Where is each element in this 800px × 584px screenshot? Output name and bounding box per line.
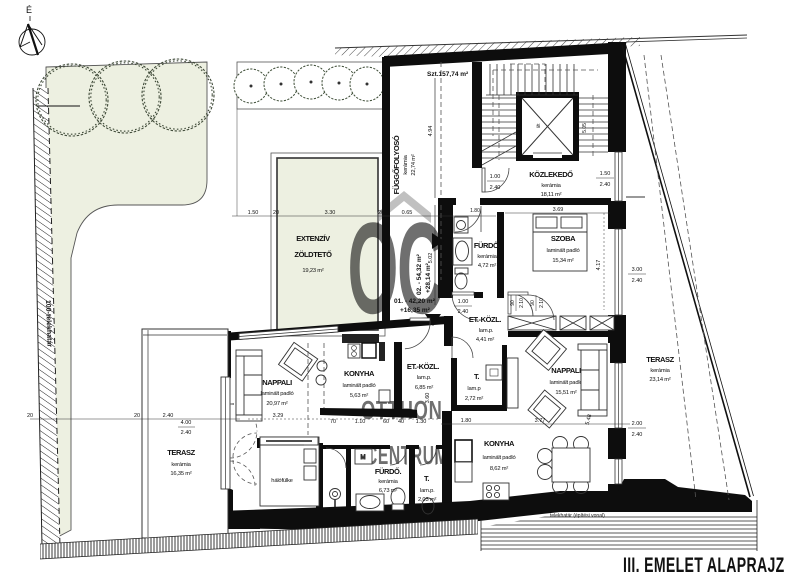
- svg-text:1.30: 1.30: [416, 419, 427, 425]
- svg-text:T.: T.: [474, 372, 479, 381]
- svg-text:kerámia: kerámia: [378, 479, 398, 485]
- svg-text:lam.p.: lam.p.: [479, 328, 494, 334]
- svg-text:lam.p.: lam.p.: [420, 488, 435, 494]
- svg-text:0.65: 0.65: [402, 210, 413, 216]
- svg-text:ET.-KÖZL.: ET.-KÖZL.: [407, 362, 440, 371]
- svg-text:4,41 m²: 4,41 m²: [476, 337, 495, 343]
- svg-text:02. - 54,32 m²: 02. - 54,32 m²: [416, 253, 423, 295]
- svg-text:4.17: 4.17: [596, 260, 602, 271]
- svg-text:3.00: 3.00: [632, 267, 643, 273]
- svg-text:laminált padló: laminált padló: [547, 248, 580, 254]
- svg-text:lam.p.: lam.p.: [417, 375, 432, 381]
- svg-text:hálófülke: hálófülke: [271, 478, 292, 484]
- svg-text:90: 90: [530, 300, 536, 306]
- svg-text:kerámia: kerámia: [171, 462, 191, 468]
- svg-text:5,63 m²: 5,63 m²: [350, 393, 369, 399]
- svg-text:kerámia: kerámia: [477, 254, 497, 260]
- svg-text:2.40: 2.40: [632, 278, 643, 284]
- svg-text:1.80: 1.80: [461, 418, 472, 424]
- svg-text:lift: lift: [536, 123, 541, 128]
- svg-text:NAPPALI: NAPPALI: [262, 378, 292, 387]
- svg-text:III. EMELET ALAPRAJZ: III. EMELET ALAPRAJZ: [623, 553, 785, 576]
- svg-text:20: 20: [378, 210, 384, 216]
- svg-text:16,35 m²: 16,35 m²: [170, 471, 192, 477]
- svg-text:5.05: 5.05: [582, 123, 588, 133]
- svg-text:telekhatár (építési vonal): telekhatár (építési vonal): [550, 513, 605, 519]
- svg-text:ET.-KÖZL.: ET.-KÖZL.: [469, 315, 502, 324]
- svg-text:2.10: 2.10: [539, 298, 545, 308]
- svg-text:2.40: 2.40: [600, 182, 611, 188]
- svg-text:É: É: [26, 5, 32, 15]
- svg-text:3.29: 3.29: [273, 413, 284, 419]
- svg-text:1.50: 1.50: [600, 171, 611, 177]
- svg-text:TERASZ: TERASZ: [646, 355, 674, 364]
- svg-text:6,85 m²: 6,85 m²: [415, 385, 434, 391]
- svg-text:15,51 m²: 15,51 m²: [555, 390, 577, 396]
- svg-text:EXTENZÍV: EXTENZÍV: [296, 234, 330, 243]
- svg-text:kerámia: kerámia: [650, 368, 670, 374]
- svg-text:lam.p: lam.p: [467, 386, 480, 392]
- svg-text:60: 60: [383, 419, 389, 425]
- svg-text:2,72 m²: 2,72 m²: [465, 396, 484, 402]
- svg-text:1.80: 1.80: [470, 208, 480, 214]
- svg-text:20,97 m²: 20,97 m²: [266, 401, 288, 407]
- svg-text:5.02: 5.02: [428, 253, 434, 264]
- svg-text:NAPPALI: NAPPALI: [551, 366, 581, 375]
- svg-text:3.69: 3.69: [553, 207, 564, 213]
- svg-text:1.50: 1.50: [248, 210, 259, 216]
- svg-text:2.40: 2.40: [181, 430, 192, 436]
- svg-text:T.: T.: [424, 474, 429, 483]
- svg-text:3.30: 3.30: [325, 210, 336, 216]
- svg-text:20: 20: [27, 413, 33, 419]
- svg-text:19,23 m²: 19,23 m²: [302, 268, 324, 274]
- svg-text:8,62 m²: 8,62 m²: [490, 466, 509, 472]
- svg-text:1.00: 1.00: [490, 174, 501, 180]
- svg-text:FÜRDŐ.: FÜRDŐ.: [474, 241, 501, 250]
- svg-text:+16,35 m²: +16,35 m²: [400, 307, 431, 314]
- svg-text:1.00: 1.00: [458, 299, 469, 305]
- svg-text:+28,14 m²: +28,14 m²: [425, 262, 432, 293]
- svg-text:SZOBA: SZOBA: [551, 234, 576, 243]
- svg-text:KÖZLEKEDŐ: KÖZLEKEDŐ: [529, 170, 573, 179]
- svg-text:23,14 m²: 23,14 m²: [649, 377, 671, 383]
- svg-text:M: M: [361, 455, 366, 461]
- svg-text:2.40: 2.40: [490, 185, 501, 191]
- svg-text:20: 20: [134, 413, 140, 419]
- svg-text:90: 90: [510, 300, 516, 306]
- svg-text:4.94: 4.94: [428, 126, 434, 137]
- svg-text:4,72 m²: 4,72 m²: [478, 263, 497, 269]
- svg-text:laminált padló: laminált padló: [550, 380, 583, 386]
- svg-text:kerámia: kerámia: [541, 183, 561, 189]
- svg-text:laminált padló: laminált padló: [343, 383, 376, 389]
- svg-text:ZÖLDTETŐ: ZÖLDTETŐ: [294, 250, 332, 259]
- svg-text:15,34 m²: 15,34 m²: [552, 258, 574, 264]
- svg-text:KONYHA: KONYHA: [484, 439, 515, 448]
- svg-text:2.10: 2.10: [519, 298, 525, 308]
- svg-text:4.00: 4.00: [181, 420, 192, 426]
- svg-text:kerámia: kerámia: [403, 154, 409, 174]
- svg-text:01. - 42,20 m²: 01. - 42,20 m²: [394, 298, 436, 305]
- svg-text:TERASZ: TERASZ: [167, 448, 195, 457]
- svg-text:2.40: 2.40: [458, 309, 469, 315]
- svg-text:18,11 m²: 18,11 m²: [541, 192, 562, 198]
- svg-text:laminált padló: laminált padló: [261, 391, 294, 397]
- svg-text:KONYHA: KONYHA: [344, 369, 375, 378]
- svg-text:laminált padló: laminált padló: [483, 455, 516, 461]
- svg-text:FÜRDŐ.: FÜRDŐ.: [375, 467, 402, 476]
- svg-text:3.77: 3.77: [535, 418, 546, 424]
- svg-text:70: 70: [330, 419, 336, 425]
- svg-text:1.10: 1.10: [355, 419, 366, 425]
- svg-text:20: 20: [273, 210, 279, 216]
- svg-text:40: 40: [398, 419, 404, 425]
- svg-text:FÜGGŐFOLYOSÓ: FÜGGŐFOLYOSÓ: [392, 135, 401, 194]
- svg-text:2.40: 2.40: [163, 413, 174, 419]
- svg-text:3.60: 3.60: [425, 393, 431, 404]
- svg-text:2.00: 2.00: [632, 421, 643, 427]
- svg-text:Szt.157,74 m²: Szt.157,74 m²: [427, 71, 469, 78]
- svg-text:22,74 m²: 22,74 m²: [411, 154, 417, 176]
- svg-text:2.40: 2.40: [632, 432, 643, 438]
